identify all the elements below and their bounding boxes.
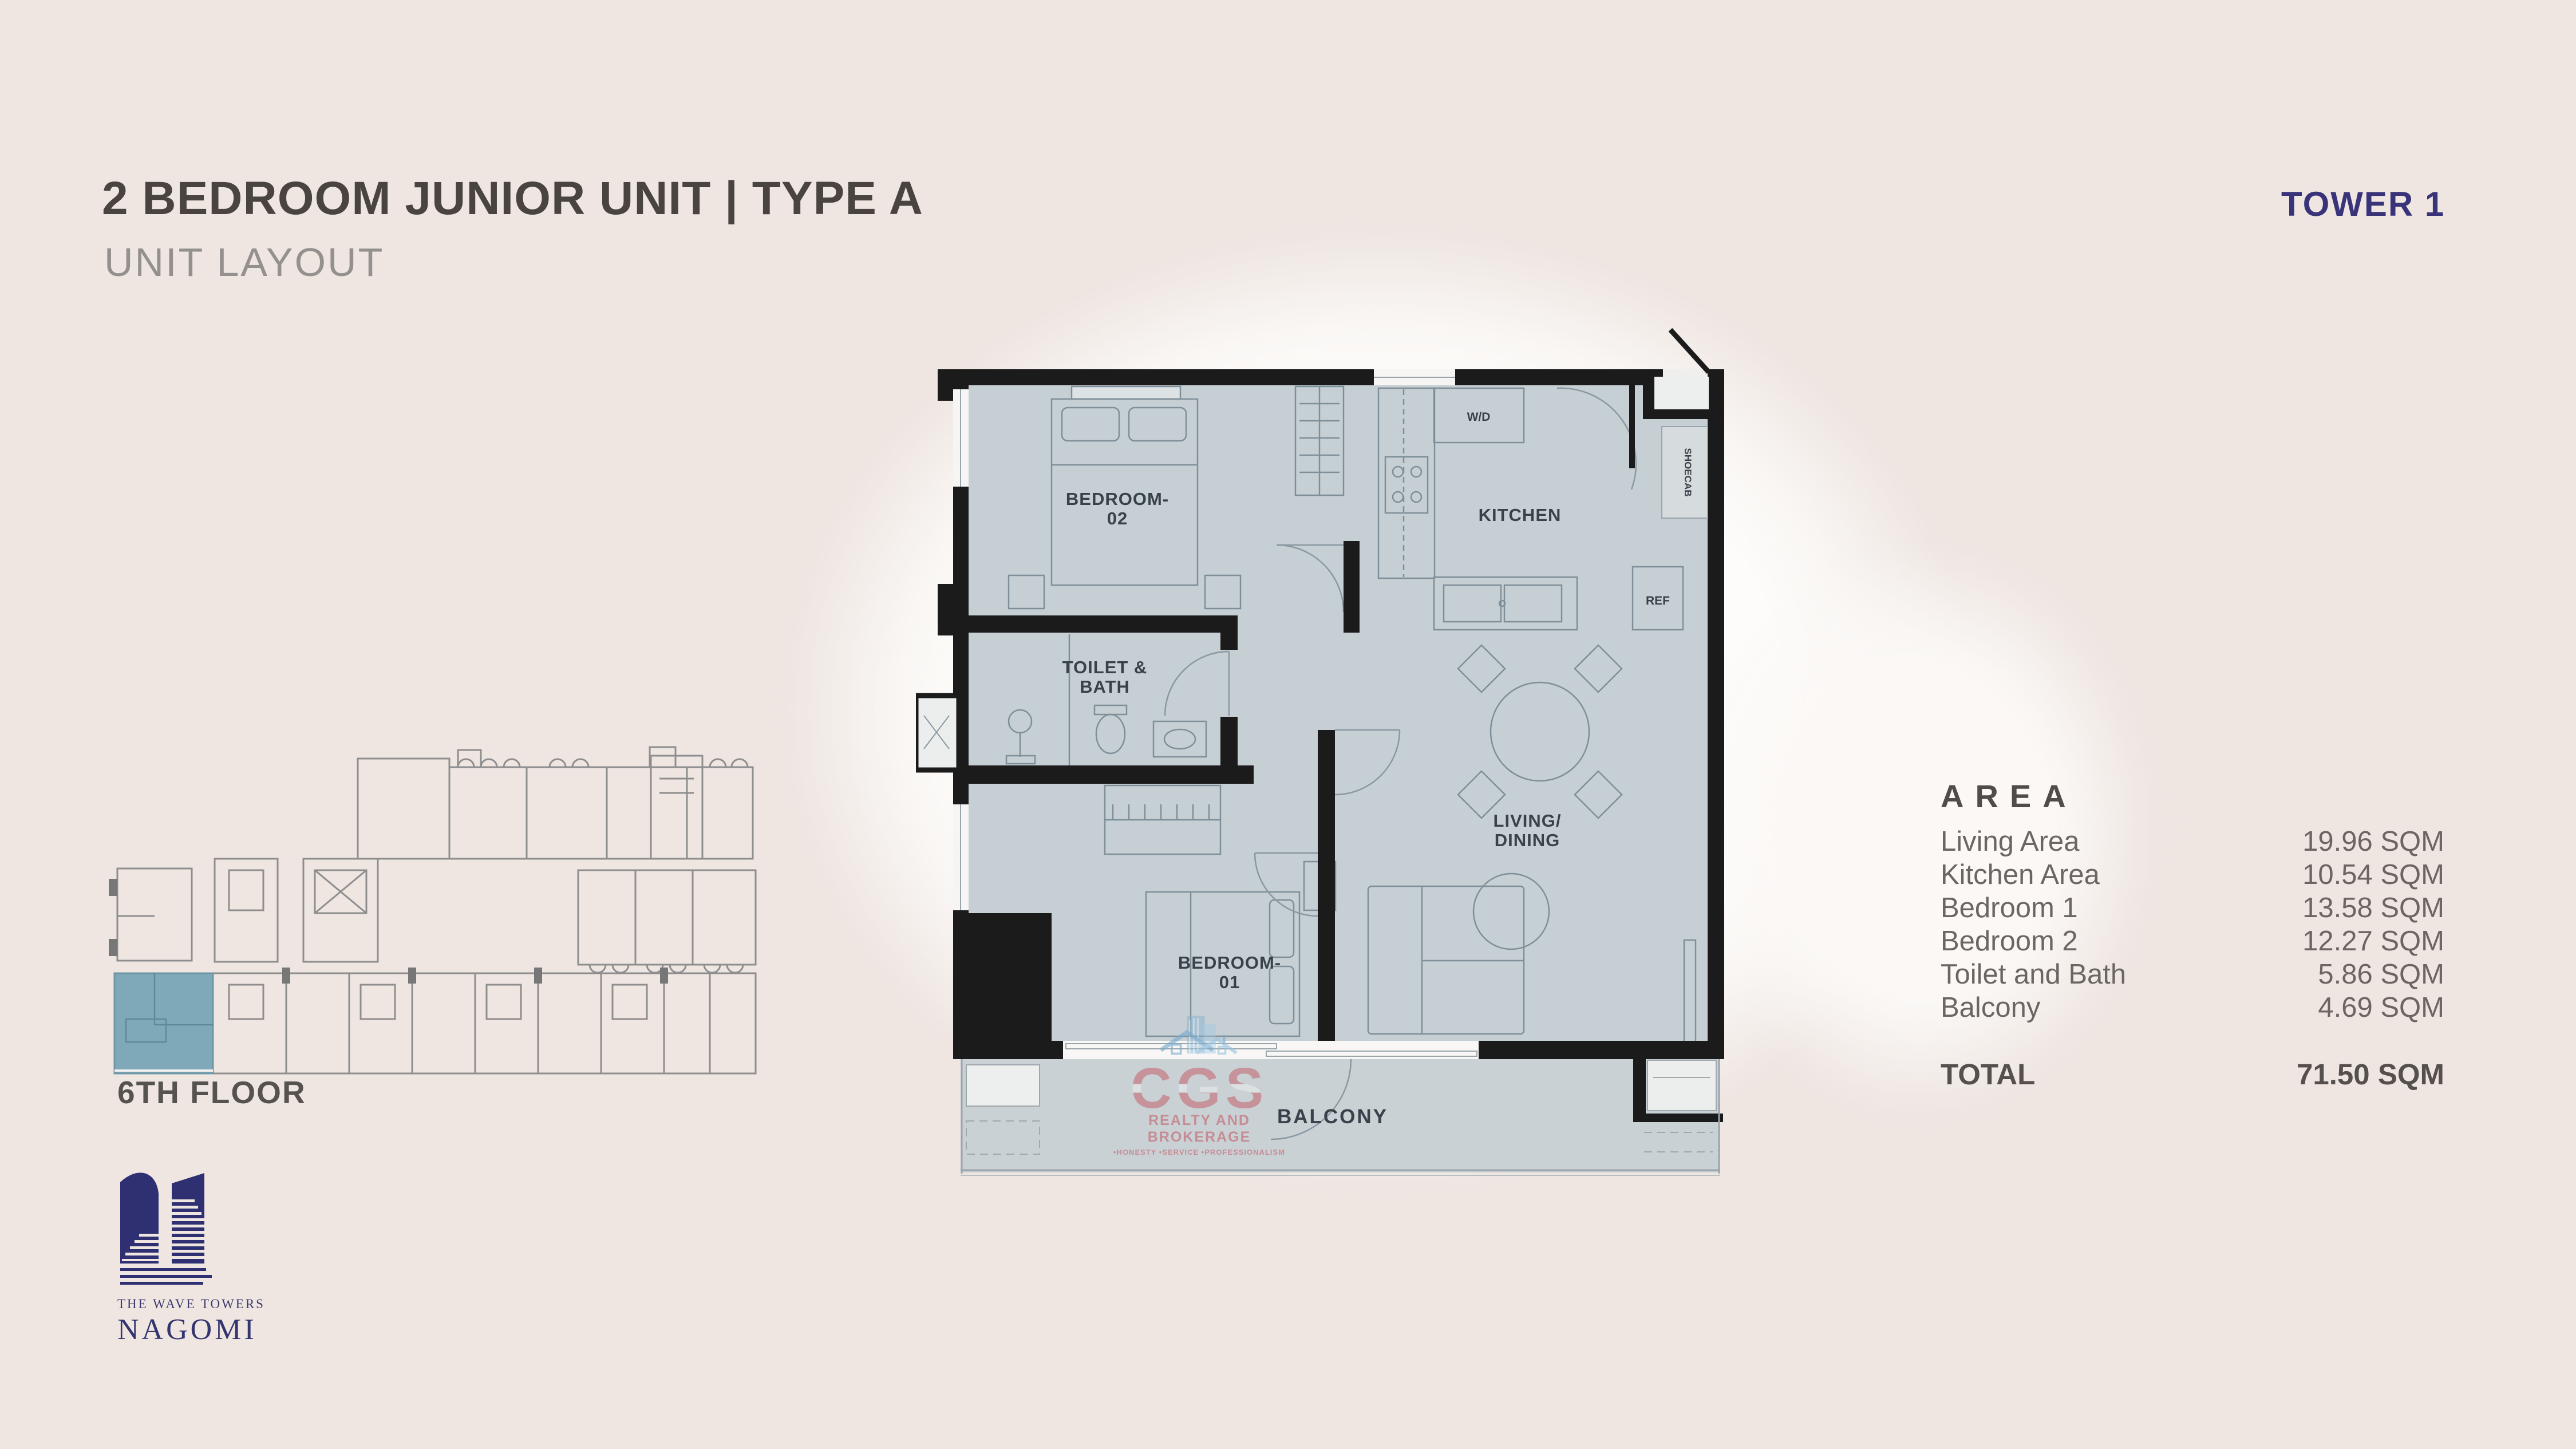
living-label-line1: LIVING/ — [1494, 811, 1562, 831]
area-total-label: TOTAL — [1941, 1057, 2035, 1091]
area-row-bedroom1: Bedroom 1 13.58 SQM — [1941, 891, 2444, 925]
area-row-value: 5.86 SQM — [2318, 958, 2444, 991]
area-row-label: Balcony — [1941, 991, 2040, 1024]
kitchen-label: KITCHEN — [1479, 505, 1562, 525]
toilet-label-line1: TOILET & — [1062, 657, 1148, 677]
area-row-label: Toilet and Bath — [1941, 958, 2126, 991]
area-row-label: Kitchen Area — [1941, 858, 2100, 891]
area-row-label: Bedroom 2 — [1941, 925, 2078, 958]
unit-floor — [961, 377, 1716, 1049]
area-row-label: Living Area — [1941, 825, 2079, 858]
wave-towers-logo-icon — [117, 1165, 215, 1288]
toilet-label-line2: BATH — [1080, 677, 1130, 697]
area-heading: AREA — [1941, 777, 2444, 815]
refrigerator-label: REF — [1646, 594, 1670, 607]
keyplan-highlighted-unit — [114, 973, 213, 1073]
watermark-values: •HONESTY •SERVICE •PROFESSIONALISM — [1096, 1148, 1302, 1156]
watermark-tagline: REALTY AND BROKERAGE — [1096, 1112, 1302, 1146]
watermark-buildings-icon — [1156, 1014, 1242, 1059]
bedroom2-label-line2: 02 — [1107, 508, 1128, 528]
unit-layout-page: 2 BEDROOM JUNIOR UNIT | TYPE A UNIT LAYO… — [0, 0, 2576, 1449]
bedroom2-label-line1: BEDROOM- — [1066, 489, 1169, 509]
tower-label: TOWER 1 — [2281, 184, 2445, 224]
area-row-value: 4.69 SQM — [2318, 991, 2444, 1024]
area-row-label: Bedroom 1 — [1941, 891, 2078, 925]
area-total-value: 71.50 SQM — [2297, 1057, 2444, 1091]
area-row-value: 10.54 SQM — [2302, 858, 2444, 891]
area-row-balcony: Balcony 4.69 SQM — [1941, 991, 2444, 1024]
cgs-watermark: CGS REALTY AND BROKERAGE •HONESTY •SERVI… — [1096, 1014, 1302, 1156]
logo-text-line1: THE WAVE TOWERS — [117, 1297, 358, 1312]
area-row-value: 12.27 SQM — [2302, 925, 2444, 958]
bedroom1-label-line2: 01 — [1219, 972, 1240, 992]
logo-text-line2: NAGOMI — [117, 1313, 358, 1347]
unit-floor-plan: BEDROOM- 02 TOILET & BATH KITCHEN W/D SH… — [916, 321, 1809, 1214]
floor-key-plan — [92, 716, 796, 1093]
area-row-kitchen: Kitchen Area 10.54 SQM — [1941, 858, 2444, 891]
area-row-living: Living Area 19.96 SQM — [1941, 825, 2444, 858]
area-row-value: 13.58 SQM — [2302, 891, 2444, 925]
brand-logo: THE WAVE TOWERS NAGOMI — [117, 1165, 358, 1347]
page-title: 2 BEDROOM JUNIOR UNIT | TYPE A — [102, 172, 923, 226]
washer-dryer-label: W/D — [1467, 410, 1491, 424]
page-subtitle: UNIT LAYOUT — [104, 239, 384, 285]
area-row-toilet: Toilet and Bath 5.86 SQM — [1941, 958, 2444, 991]
area-row-bedroom2: Bedroom 2 12.27 SQM — [1941, 925, 2444, 958]
area-row-value: 19.96 SQM — [2302, 825, 2444, 858]
watermark-name: CGS — [1096, 1062, 1302, 1115]
bedroom1-label-line1: BEDROOM- — [1178, 953, 1281, 973]
living-label-line2: DINING — [1495, 830, 1560, 850]
shoe-cabinet-label: SHOECAB — [1682, 448, 1693, 496]
area-table: AREA Living Area 19.96 SQM Kitchen Area … — [1941, 777, 2444, 1091]
floor-level-label: 6TH FLOOR — [117, 1074, 306, 1111]
area-total-row: TOTAL 71.50 SQM — [1941, 1057, 2444, 1091]
